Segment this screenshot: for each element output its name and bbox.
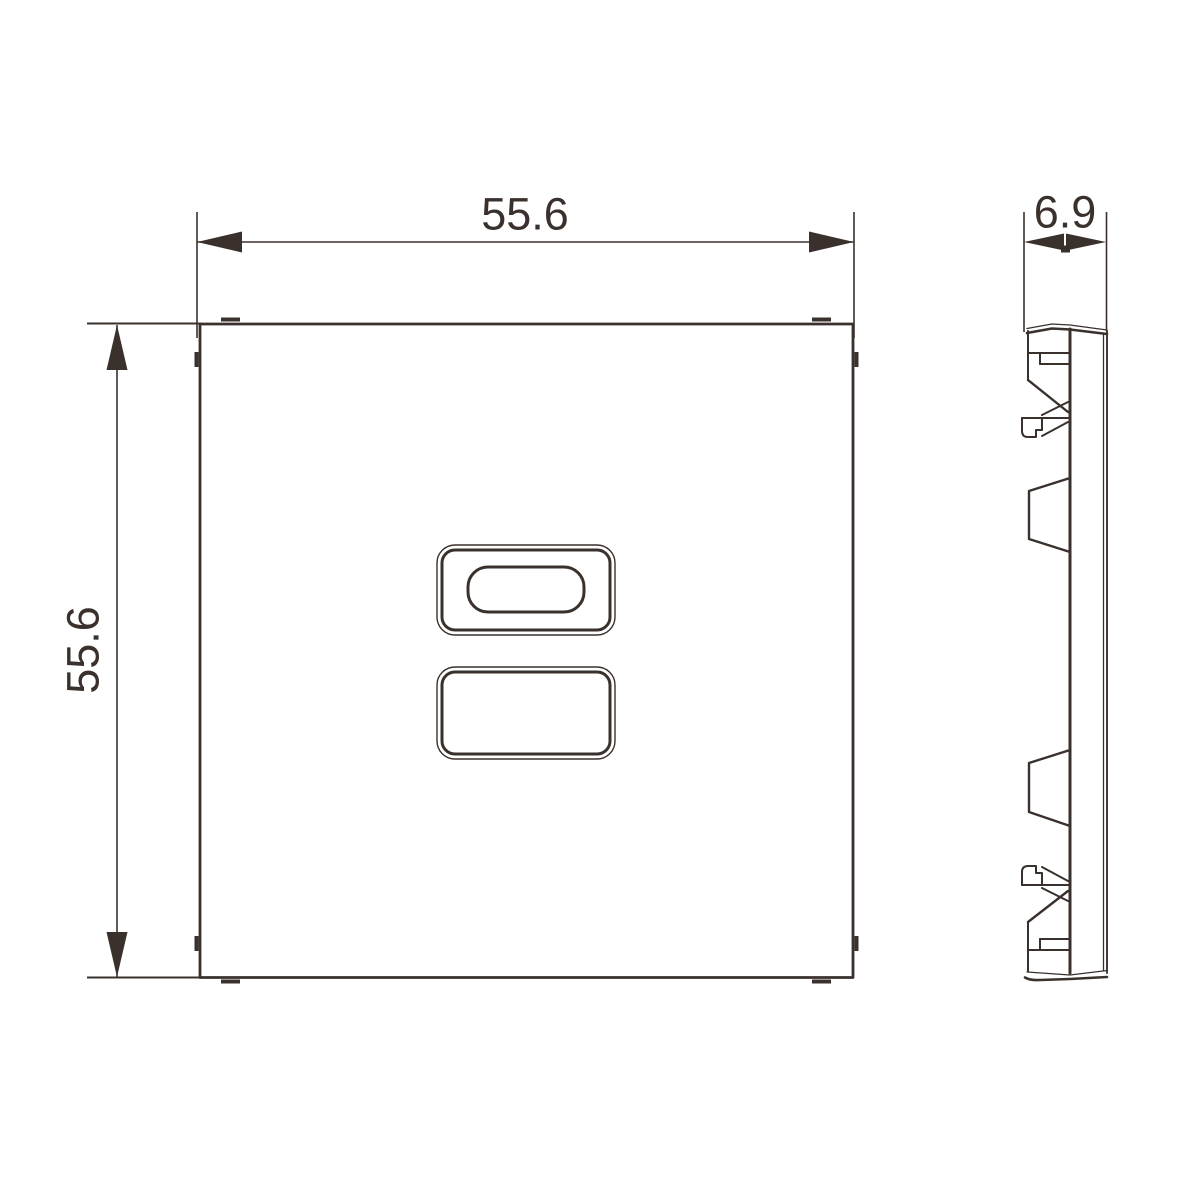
clip-hook-brace: [1042, 867, 1068, 881]
port-opening-outer-line: [437, 667, 615, 759]
locating-lug-upper: [1029, 478, 1070, 552]
clip-hook-brace: [1042, 422, 1068, 436]
drawing-linework: [0, 0, 1181, 1181]
arrowhead-down: [107, 932, 128, 977]
port-opening-bottom: [437, 667, 615, 759]
port-pill-slot: [468, 567, 584, 612]
locating-lug-lower: [1029, 750, 1070, 826]
clip-hook: [1022, 866, 1042, 885]
arrowhead-left: [197, 232, 242, 253]
technical-drawing: 55.6 55.6 6.9: [0, 0, 1181, 1181]
tick-mark: [195, 936, 199, 951]
plate-outline: [200, 324, 853, 978]
depth-dimension-label: 6.9: [1034, 190, 1097, 235]
clip-hook: [1022, 418, 1042, 437]
height-dimension-label: 55.6: [61, 606, 106, 694]
port-opening-bezel: [442, 672, 610, 754]
side-bottom-edge: [1027, 971, 1107, 976]
front-view: [195, 318, 859, 984]
tick-mark: [812, 980, 831, 984]
side-top-edge: [1027, 329, 1107, 335]
clip-spring: [1028, 380, 1068, 412]
tick-mark: [855, 936, 859, 951]
clip-spring: [1028, 891, 1068, 922]
edge-tick-marks: [195, 318, 859, 984]
dimension-center-tick: [1061, 246, 1070, 253]
width-dimension-label: 55.6: [481, 192, 569, 237]
port-opening-top: [437, 545, 615, 635]
mounting-clip-bottom: [1022, 866, 1070, 971]
mounting-clip-top: [1022, 331, 1070, 437]
port-opening-outer-line: [437, 545, 615, 635]
tick-mark: [221, 318, 240, 322]
side-bottom-edge: [1025, 977, 1107, 980]
tick-mark: [855, 352, 859, 367]
side-view: [1022, 324, 1107, 980]
tick-mark: [195, 352, 199, 367]
arrowhead-up: [107, 325, 128, 370]
tick-mark: [812, 318, 831, 322]
tick-mark: [221, 980, 240, 984]
arrowhead-right: [809, 232, 854, 253]
